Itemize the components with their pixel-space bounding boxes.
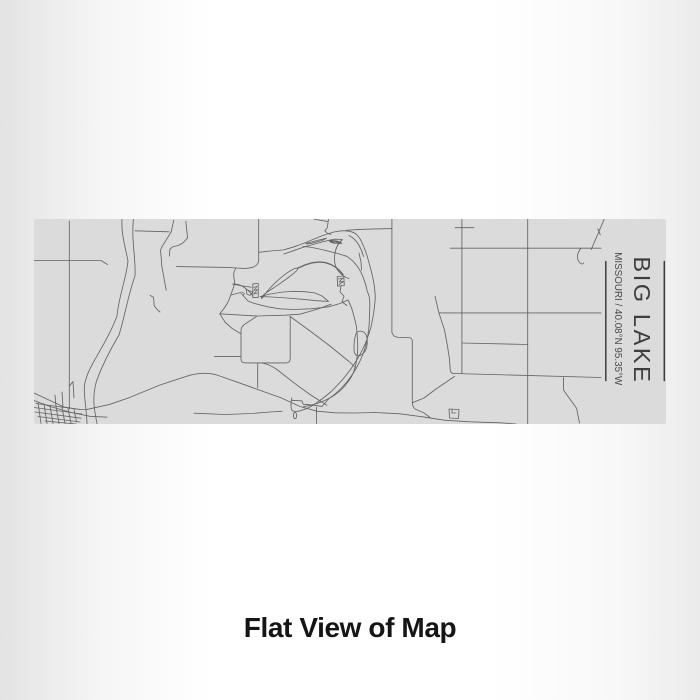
svg-text:MISSOURI / 40.08°N 95.35°W: MISSOURI / 40.08°N 95.35°W	[612, 252, 623, 386]
svg-text:BIG LAKE: BIG LAKE	[629, 257, 655, 385]
